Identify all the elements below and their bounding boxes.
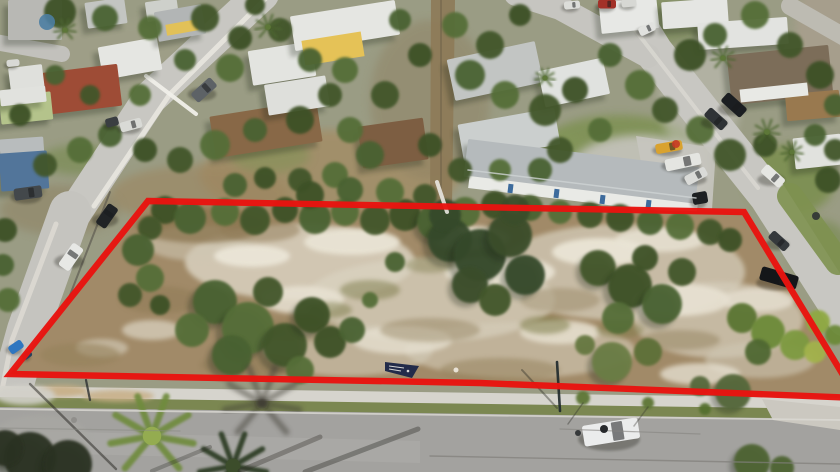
ground-mark (454, 368, 459, 373)
tree (216, 54, 244, 82)
tree (588, 118, 612, 142)
tree (212, 335, 252, 375)
tree (371, 81, 399, 109)
tree (133, 138, 157, 162)
palm-crown (543, 76, 548, 81)
tree (253, 277, 283, 307)
truck-red-glass (607, 1, 611, 8)
sand-patch (82, 390, 154, 402)
food-truck-accent (672, 140, 680, 148)
tree (602, 302, 634, 334)
tree (337, 117, 363, 143)
car-white-top-2-body (621, 0, 637, 8)
tree (33, 153, 57, 177)
tree (243, 118, 267, 142)
tree (575, 335, 595, 355)
tree (718, 228, 742, 252)
sand-patch (40, 343, 120, 367)
tree (80, 85, 100, 105)
tree (9, 104, 31, 126)
tree (332, 57, 358, 83)
tree (815, 167, 840, 193)
palm-crown (720, 55, 725, 60)
car-white-topleft (6, 59, 20, 67)
tree (174, 49, 196, 71)
car-white-top-body (564, 0, 581, 9)
truck-red-body (598, 0, 616, 9)
tree (741, 1, 769, 29)
tree (45, 65, 65, 85)
tree (632, 245, 658, 271)
tree (753, 133, 777, 157)
tree (806, 61, 834, 89)
suv-windshield (575, 430, 581, 436)
tree (118, 283, 142, 307)
tree (129, 84, 151, 106)
tree (634, 338, 662, 366)
manhole (71, 417, 77, 423)
tree (150, 295, 170, 315)
tree (339, 317, 365, 343)
tree (174, 202, 206, 234)
aerial-lot-photo (0, 0, 840, 472)
sand-patch (520, 316, 570, 334)
car-white-topleft-body (6, 59, 20, 67)
palm-crown (63, 28, 68, 33)
tree (489, 159, 511, 181)
truck-red (598, 0, 616, 9)
tree (200, 130, 230, 160)
tree (240, 205, 270, 235)
sand-patch (122, 320, 182, 340)
aerial-scene (0, 0, 840, 472)
tree (175, 313, 209, 347)
tree (356, 141, 384, 169)
tree (529, 94, 561, 126)
tree (408, 43, 432, 67)
pool (39, 14, 55, 30)
tree (254, 167, 276, 189)
tree (703, 23, 727, 47)
palm-crown (143, 427, 161, 445)
tree (362, 292, 378, 308)
tree (745, 339, 771, 365)
suv-sunroof (600, 425, 608, 433)
tree (223, 173, 247, 197)
tree (479, 284, 511, 316)
tree (666, 212, 694, 240)
lot-sign-logo-dot (407, 370, 410, 373)
palm-crown (764, 129, 770, 135)
tree (67, 137, 93, 163)
car-white-top-glass (572, 2, 576, 8)
tree (385, 252, 405, 272)
tree (191, 4, 219, 32)
tree (777, 32, 803, 58)
tree (592, 342, 632, 382)
tree (122, 234, 154, 266)
tree (548, 200, 572, 224)
tree (652, 97, 678, 123)
tree (668, 258, 696, 286)
tree (360, 205, 390, 235)
tree (625, 70, 655, 100)
tree (547, 137, 573, 163)
tree (442, 12, 468, 38)
tree (642, 284, 682, 324)
car-white-top-2 (621, 0, 637, 8)
trash-bin (812, 212, 820, 220)
palm-crown (790, 150, 795, 155)
tree (804, 124, 826, 146)
tree (598, 43, 622, 67)
tree (509, 4, 531, 26)
tree (418, 133, 442, 157)
tree (228, 26, 252, 50)
tree (138, 16, 162, 40)
palm-crown (265, 24, 271, 30)
tree (92, 5, 118, 31)
car-white-top (564, 0, 581, 9)
tree (389, 9, 411, 31)
tree (286, 106, 314, 134)
tree (298, 48, 322, 72)
tree (318, 83, 342, 107)
tree (136, 264, 164, 292)
tree (674, 39, 706, 71)
tree (476, 31, 504, 59)
tree (376, 178, 404, 206)
tree (491, 81, 519, 109)
tree (505, 255, 545, 295)
tree (714, 139, 746, 171)
tree (562, 77, 588, 103)
tree (167, 147, 193, 173)
tree (337, 177, 363, 203)
tree (699, 403, 711, 415)
sand-patch (380, 318, 480, 342)
sand-patch (214, 245, 290, 267)
tree (455, 60, 485, 90)
